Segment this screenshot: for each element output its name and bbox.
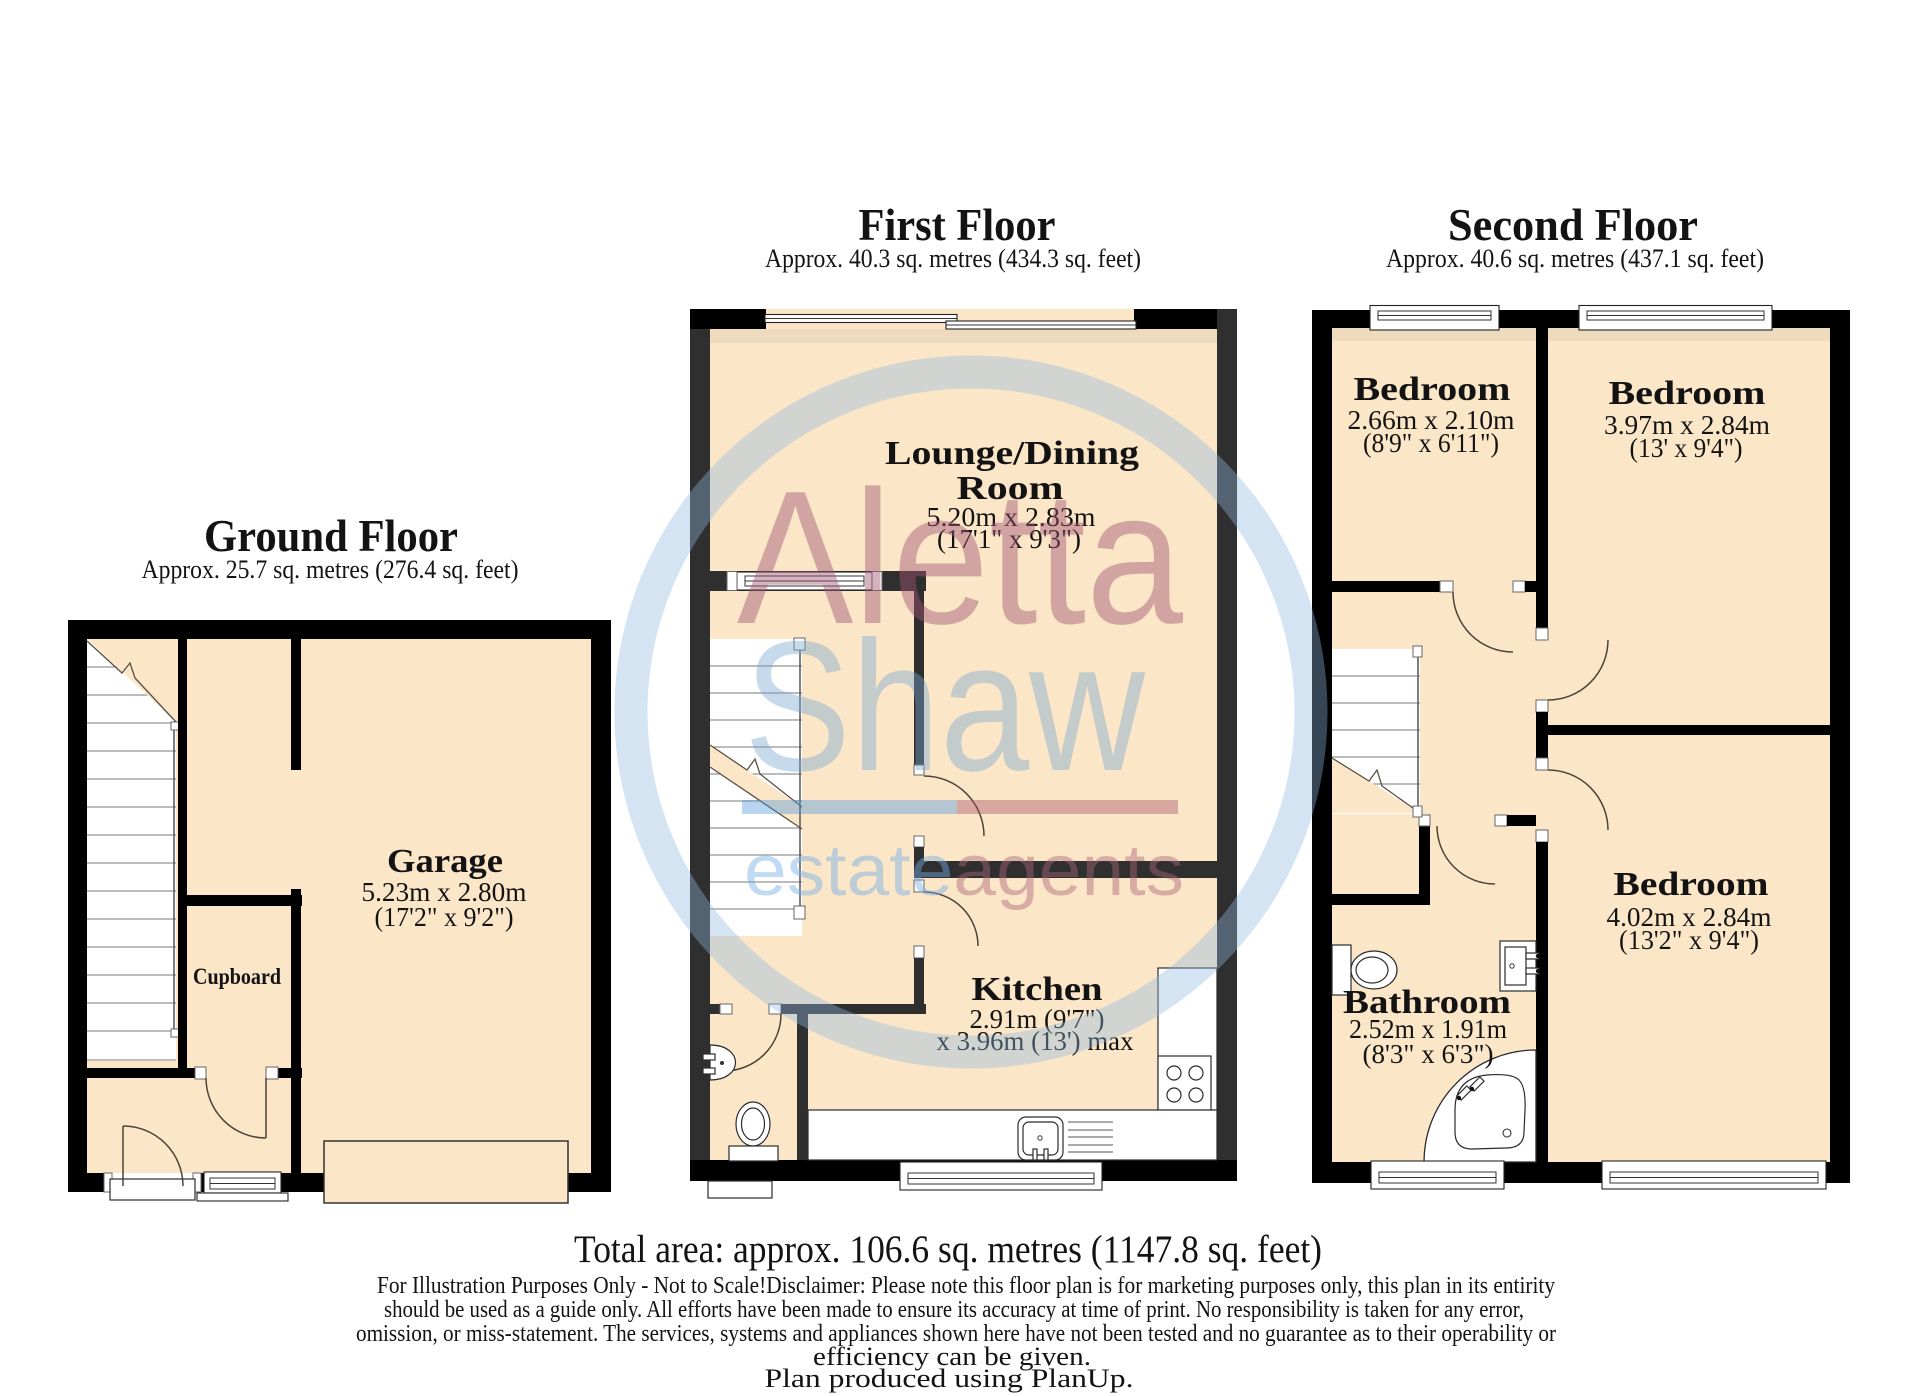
svg-text:should be used as a guide only: should be used as a guide only. All effo… xyxy=(384,1296,1524,1323)
svg-text:Bedroom: Bedroom xyxy=(1354,371,1511,408)
svg-text:Ground Floor: Ground Floor xyxy=(204,511,458,561)
svg-text:Bedroom: Bedroom xyxy=(1614,866,1769,903)
svg-text:(17'2" x 9'2"): (17'2" x 9'2") xyxy=(375,902,514,932)
svg-text:Shaw: Shaw xyxy=(744,604,1146,810)
svg-text:Approx. 40.6 sq. metres (437.1: Approx. 40.6 sq. metres (437.1 sq. feet) xyxy=(1386,244,1764,273)
svg-text:Approx. 25.7 sq. metres (276.4: Approx. 25.7 sq. metres (276.4 sq. feet) xyxy=(142,555,519,584)
svg-text:Second Floor: Second Floor xyxy=(1448,200,1698,250)
svg-text:(13' x 9'4"): (13' x 9'4") xyxy=(1630,433,1743,463)
svg-text:Kitchen: Kitchen xyxy=(972,971,1103,1008)
svg-text:Approx. 40.3 sq. metres (434.3: Approx. 40.3 sq. metres (434.3 sq. feet) xyxy=(765,244,1141,273)
svg-text:(8'9" x 6'11"): (8'9" x 6'11") xyxy=(1363,428,1499,458)
svg-text:Cupboard: Cupboard xyxy=(193,964,281,989)
svg-text:Plan produced using PlanUp.: Plan produced using PlanUp. xyxy=(765,1364,1134,1393)
svg-text:(13'2" x 9'4"): (13'2" x 9'4") xyxy=(1619,925,1759,955)
svg-text:Total area: approx. 106.6 sq.: Total area: approx. 106.6 sq. metres (11… xyxy=(574,1228,1322,1271)
svg-text:For Illustration Purposes Only: For Illustration Purposes Only - Not to … xyxy=(377,1272,1556,1299)
svg-text:Garage: Garage xyxy=(387,843,503,880)
svg-text:estateagents: estateagents xyxy=(744,831,1184,911)
svg-text:First Floor: First Floor xyxy=(859,200,1056,250)
svg-text:(8'3" x 6'3"): (8'3" x 6'3") xyxy=(1363,1039,1494,1069)
svg-text:Bedroom: Bedroom xyxy=(1609,375,1766,412)
